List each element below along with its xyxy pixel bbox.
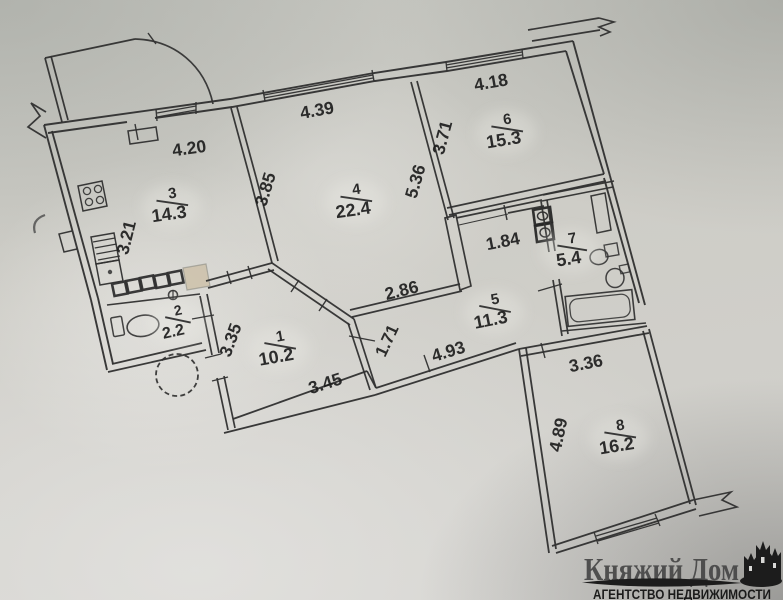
svg-text:4.93: 4.93 (429, 337, 468, 366)
svg-text:5.36: 5.36 (401, 162, 430, 201)
svg-text:1.84: 1.84 (484, 228, 522, 254)
svg-text:4.20: 4.20 (171, 136, 208, 161)
svg-text:3.71: 3.71 (428, 118, 456, 156)
svg-text:3.35: 3.35 (215, 320, 246, 359)
svg-text:4.89: 4.89 (545, 416, 572, 454)
svg-text:3.36: 3.36 (567, 350, 605, 376)
svg-text:4.39: 4.39 (298, 97, 335, 123)
svg-text:5.4: 5.4 (555, 247, 583, 271)
svg-text:3.21: 3.21 (112, 218, 140, 256)
svg-text:1.71: 1.71 (371, 322, 402, 360)
svg-text:АГЕНТСТВО НЕДВИЖИМОСТИ: АГЕНТСТВО НЕДВИЖИМОСТИ (593, 586, 771, 600)
svg-text:2.86: 2.86 (383, 276, 421, 304)
svg-text:3.45: 3.45 (306, 368, 345, 398)
svg-text:4.18: 4.18 (472, 69, 509, 95)
